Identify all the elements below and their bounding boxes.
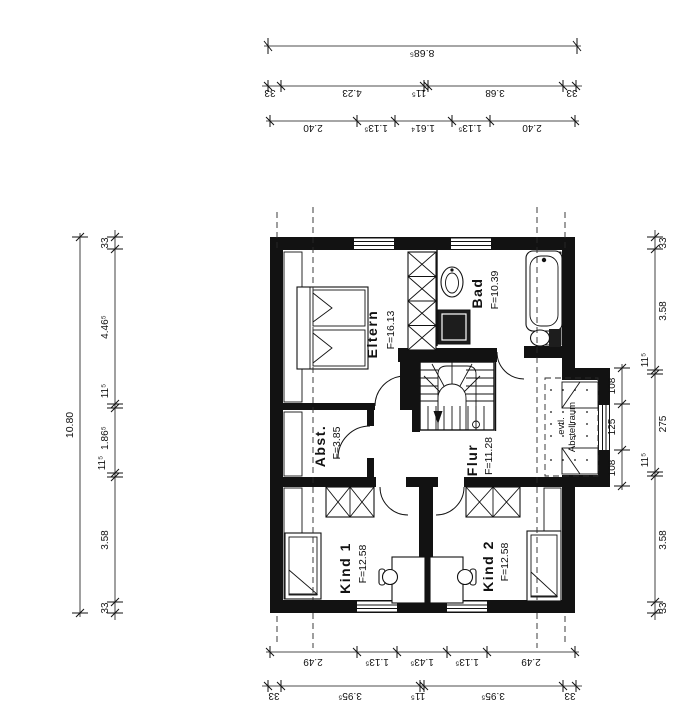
dim-top-total: 8.68⁵: [410, 47, 435, 59]
room-label-kind2: Kind 2: [480, 540, 496, 592]
room-label-abst: Abst.: [312, 425, 328, 468]
dim-label: 2.49: [521, 656, 541, 667]
washbasin: [441, 267, 463, 297]
room-label-bad: Bad: [469, 278, 485, 309]
room-area-flur: F=11.28: [483, 437, 495, 475]
dim-label: 3.95⁵: [338, 690, 362, 701]
dim-label: 1.13⁵: [365, 656, 389, 667]
room-label-evtl-1: evtl.: [556, 417, 567, 434]
toilet: [531, 329, 562, 347]
staircase: [420, 362, 494, 430]
dim-label: 11⁵: [97, 456, 108, 471]
dim-label: 3.58: [658, 530, 669, 550]
bathtub: [526, 251, 562, 331]
dim-label: 1.43⁵: [410, 656, 434, 667]
dim-label: 3.68: [485, 87, 505, 98]
dim-label: 11⁵: [411, 690, 426, 701]
single-bed-kind1: [285, 533, 321, 599]
dim-label: 11⁵: [412, 87, 427, 98]
room-area-bad: F=10.39: [489, 270, 501, 309]
dim-label: 1.13⁵: [455, 656, 479, 667]
room-label-evtl-2: Abstellraum: [567, 402, 578, 452]
room-label-eltern: Eltern: [364, 310, 380, 359]
wardrobe-kind1: [326, 487, 374, 517]
dim-label: 108: [607, 459, 618, 476]
single-bed-kind2: [527, 531, 561, 601]
door-arc-kind1: [380, 487, 408, 515]
window-top-right: [447, 238, 495, 249]
dim-label: 33: [658, 602, 669, 614]
dim-label: 11⁵: [100, 384, 111, 399]
dim-label: 1.61⁴: [411, 122, 435, 133]
shower: [438, 310, 470, 344]
wardrobe-kind2: [466, 487, 520, 517]
dim-label: 2.40: [303, 122, 323, 133]
stair-direction-arrow: [434, 366, 480, 428]
room-area-kind1: F=12.58: [357, 544, 369, 583]
dim-label: 4.23: [342, 87, 362, 98]
dim-label: 33: [658, 237, 669, 249]
wardrobe-eltern-bad: [408, 252, 436, 350]
dim-label: 33: [268, 690, 280, 701]
room-area-abst: F=3.85: [331, 426, 343, 459]
door-arc-kind2: [436, 487, 464, 515]
dim-label: 275: [658, 415, 669, 432]
dimension-right: 33 3.58 11⁵ 275 11⁵ 3.58 33 108 125 108: [607, 230, 669, 620]
desk-kind1: [379, 557, 425, 603]
dim-label: 33: [264, 87, 276, 98]
room-label-flur: Flur: [464, 444, 480, 476]
dim-label: 33: [100, 602, 111, 614]
room-area-eltern: F=16.13: [385, 310, 397, 349]
dim-label: 1.13⁵: [458, 122, 482, 133]
dim-label: 11⁵: [640, 353, 651, 368]
window-top-left: [350, 238, 398, 249]
dim-label: 3.58: [658, 301, 669, 321]
dim-label: 1.13⁵: [364, 122, 388, 133]
dimension-top: 8.68⁵ 33 4.23 11⁵ 3.68 33 2.40 1.13⁵ 1.6…: [262, 38, 582, 133]
dim-label: 3.95⁵: [481, 690, 505, 701]
double-bed: [297, 287, 368, 369]
dim-label: 108: [607, 377, 618, 394]
dim-left-total: 10.80: [64, 412, 76, 438]
dim-label: 3.58: [100, 530, 111, 550]
dim-label: 33: [566, 87, 578, 98]
dim-label: 33: [564, 690, 576, 701]
dim-label: 33: [100, 237, 111, 249]
dimension-left: 10.80 33 4.46⁵ 11⁵ 1.86⁵ 11⁵ 3.58 33: [64, 230, 123, 620]
desk-kind2: [430, 557, 476, 603]
floor-plan-drawing: { "rooms": { "eltern": {"label": "Eltern…: [0, 0, 697, 707]
dim-label: 2.49: [303, 656, 323, 667]
room-area-kind2: F=12.58: [499, 542, 511, 581]
dim-label: 2.40: [522, 122, 542, 133]
dim-label: 11⁵: [640, 453, 651, 468]
dim-label: 1.86⁵: [100, 426, 111, 450]
dim-label: 125: [607, 418, 618, 435]
room-label-kind1: Kind 1: [337, 542, 353, 594]
dim-label: 4.46⁵: [100, 315, 111, 339]
dimension-bottom: 2.49 1.13⁵ 1.43⁵ 1.13⁵ 2.49 33 3.95⁵ 11⁵…: [262, 646, 582, 701]
door-arc-bad: [497, 352, 524, 379]
